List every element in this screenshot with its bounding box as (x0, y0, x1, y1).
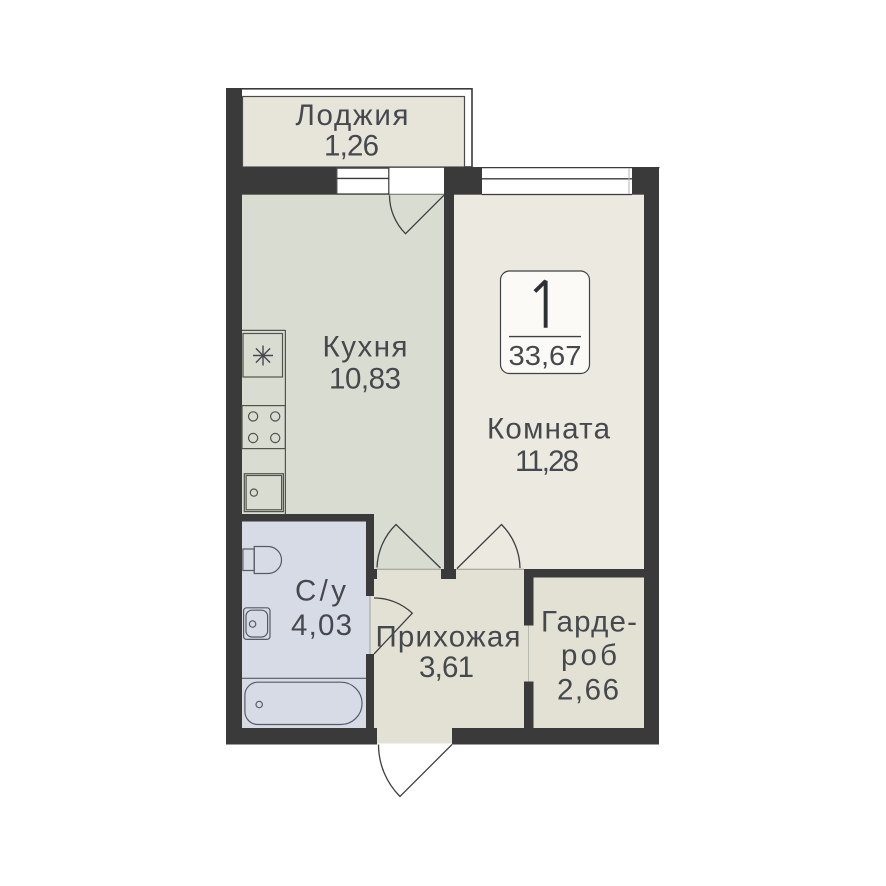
svg-text:3,61: 3,61 (419, 651, 474, 684)
svg-text:2,66: 2,66 (557, 674, 619, 707)
svg-text:Кухня: Кухня (323, 331, 408, 364)
svg-text:Комната: Комната (487, 413, 611, 446)
svg-text:1,26: 1,26 (324, 130, 379, 163)
svg-text:11,28: 11,28 (515, 445, 579, 478)
svg-text:33,67: 33,67 (509, 340, 582, 371)
svg-text:Лоджия: Лоджия (296, 99, 409, 132)
svg-text:Прихожая: Прихожая (376, 621, 521, 654)
svg-text:10,83: 10,83 (329, 363, 401, 396)
svg-text:4,03: 4,03 (291, 609, 352, 642)
svg-text:С/у: С/у (295, 575, 346, 608)
svg-text:роб: роб (561, 639, 617, 672)
